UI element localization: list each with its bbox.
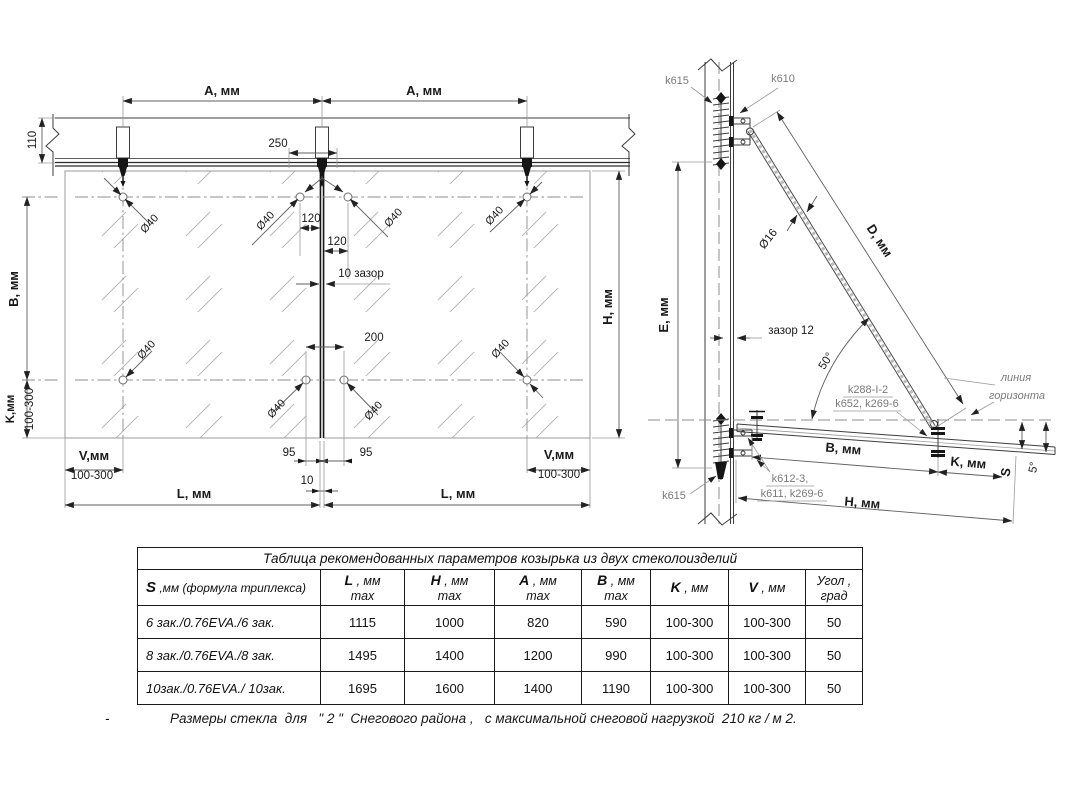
dim-b: B, мм: [6, 271, 21, 307]
anchor-bottom: [713, 413, 729, 480]
cell-value: 100-300: [729, 639, 806, 672]
drawing-page: A, мм A, мм 110 250 120 120 10 зазор: [0, 0, 1067, 800]
header-symbol: V: [749, 579, 758, 595]
dim-b-side: B, мм: [825, 439, 862, 457]
dim-95-left: 95: [283, 447, 296, 459]
cell-formula: 6 зак./0.76EVA./6 зак.: [138, 606, 321, 639]
support-rod: [748, 129, 935, 429]
anchor-top: [713, 92, 729, 170]
header-symbol: B: [597, 572, 607, 588]
wall-and-rail: [46, 114, 635, 176]
dim-s: S: [997, 466, 1013, 477]
front-view: A, мм A, мм 110 250 120 120 10 зазор: [5, 83, 635, 508]
cell-formula: 8 зак./0.76EVA./8 зак.: [138, 639, 321, 672]
header-s-rest: ,мм (формула триплекса): [156, 581, 306, 595]
cell-value: 100-300: [729, 672, 806, 705]
header-unit: , мм: [681, 581, 709, 595]
callout-horizon-2: горизонта: [989, 390, 1045, 402]
table-header-angle: Угол , град: [806, 570, 863, 606]
header-symbol: K: [671, 579, 681, 595]
side-dimensions: D, мм Ø16 E, мм зазор 12 50° B, мм K,: [648, 110, 1055, 524]
dim-l-left: L, мм: [177, 486, 211, 501]
cell-value: 100-300: [729, 606, 806, 639]
drawing-canvas: A, мм A, мм 110 250 120 120 10 зазор: [0, 0, 1067, 545]
cell-value: 1115: [321, 606, 405, 639]
header-unit: , мм: [353, 574, 381, 588]
cell-value: 1000: [405, 606, 495, 639]
header-unit: , мм: [529, 574, 557, 588]
footnote-text: Размеры стекла для " 2 " Снегового район…: [170, 711, 797, 726]
part-callouts: k615 k610 k288-I-2 k652, k269-6 линия го…: [662, 73, 1045, 502]
wall-section: [698, 59, 754, 525]
cell-value: 820: [495, 606, 582, 639]
header-sub: max: [586, 589, 646, 603]
cell-value: 100-300: [651, 639, 729, 672]
dim-d: D, мм: [864, 221, 896, 259]
header-symbol: H: [431, 572, 441, 588]
table-header-l: L , мм max: [321, 570, 405, 606]
header-sub: max: [409, 589, 490, 603]
table-header-b: B , мм max: [582, 570, 651, 606]
canopy-glass-side: [737, 410, 1055, 458]
callout-k615-top: k615: [665, 75, 689, 87]
dim-a-right: A, мм: [406, 83, 442, 98]
callout-k288: k288-I-2: [848, 384, 888, 396]
dim-h-side: H, мм: [844, 493, 881, 511]
header-unit: , мм: [758, 581, 786, 595]
dim-120b: 120: [327, 236, 346, 248]
callout-k611: k611, k269-6: [761, 488, 824, 500]
footnote: -Размеры стекла для " 2 " Снегового райо…: [105, 711, 797, 726]
dim-110: 110: [27, 131, 39, 149]
callout-k610: k610: [771, 73, 795, 85]
callout-k615-bottom: k615: [662, 490, 686, 502]
table-header-h: H , мм max: [405, 570, 495, 606]
dim-angle5: 5°: [1027, 461, 1041, 474]
cell-value: 50: [806, 639, 863, 672]
table-title: Таблица рекомендованных параметров козыр…: [138, 548, 863, 570]
cell-value: 50: [806, 672, 863, 705]
header-symbol: A: [519, 572, 529, 588]
cell-formula: 10зак./0.76EVA./ 10зак.: [138, 672, 321, 705]
dim-gap10: 10 зазор: [338, 268, 383, 280]
dim-l-right: L, мм: [441, 486, 475, 501]
cell-value: 50: [806, 606, 863, 639]
table-row: 8 зак./0.76EVA./8 зак. 1495 1400 1200 99…: [138, 639, 863, 672]
parameters-table: Таблица рекомендованных параметров козыр…: [137, 547, 863, 705]
cell-value: 590: [582, 606, 651, 639]
callout-horizon-1: линия: [1000, 372, 1031, 384]
cell-value: 100-300: [651, 606, 729, 639]
cell-value: 1190: [582, 672, 651, 705]
table-header-k: K , мм: [651, 570, 729, 606]
side-view: D, мм Ø16 E, мм зазор 12 50° B, мм K,: [648, 59, 1055, 525]
cell-value: 1600: [405, 672, 495, 705]
table-header-s: S ,мм (формула триплекса): [138, 570, 321, 606]
dim-d16: Ø16: [757, 227, 780, 252]
dim-120a: 120: [301, 213, 320, 225]
header-symbol: L: [344, 572, 353, 588]
table-row: 6 зак./0.76EVA./6 зак. 1115 1000 820 590…: [138, 606, 863, 639]
dim-v-right-range: 100-300: [538, 469, 580, 481]
dim-k-range: 100-300: [24, 388, 36, 430]
header-unit: , мм: [607, 574, 635, 588]
header-unit: , мм: [441, 574, 469, 588]
dim-10-bottom: 10: [301, 475, 314, 487]
dim-a-left: A, мм: [204, 83, 240, 98]
dim-95-right: 95: [360, 447, 373, 459]
cell-value: 1200: [495, 639, 582, 672]
dim-h: H, мм: [600, 289, 615, 325]
header-sub: max: [325, 589, 400, 603]
callout-k612: k612-3,: [772, 473, 809, 485]
table-header-a: A , мм max: [495, 570, 582, 606]
table-row: 10зак./0.76EVA./ 10зак. 1695 1600 1400 1…: [138, 672, 863, 705]
dim-k-side: K, мм: [950, 453, 987, 471]
header-unit: Угол ,: [817, 574, 851, 588]
dim-v-left-range: 100-300: [71, 470, 113, 482]
header-s-symbol: S: [146, 579, 156, 596]
cell-value: 1695: [321, 672, 405, 705]
header-sub: max: [499, 589, 577, 603]
table-header-v: V , мм: [729, 570, 806, 606]
dim-v-left: V,мм: [79, 448, 109, 463]
header-sub: град: [810, 589, 858, 603]
dim-200: 200: [364, 332, 383, 344]
cell-value: 1400: [495, 672, 582, 705]
cell-value: 1400: [405, 639, 495, 672]
dim-k: K,мм: [5, 395, 17, 424]
cell-value: 990: [582, 639, 651, 672]
dim-v-right: V,мм: [544, 447, 574, 462]
callout-k652: k652, k269-6: [835, 398, 899, 410]
dim-gap12: зазор 12: [768, 325, 813, 337]
cell-value: 1495: [321, 639, 405, 672]
footnote-dash: -: [105, 711, 170, 726]
dim-e: E, мм: [656, 297, 671, 332]
cell-value: 100-300: [651, 672, 729, 705]
dim-250: 250: [268, 138, 287, 150]
dim-angle50: 50°: [817, 351, 837, 372]
